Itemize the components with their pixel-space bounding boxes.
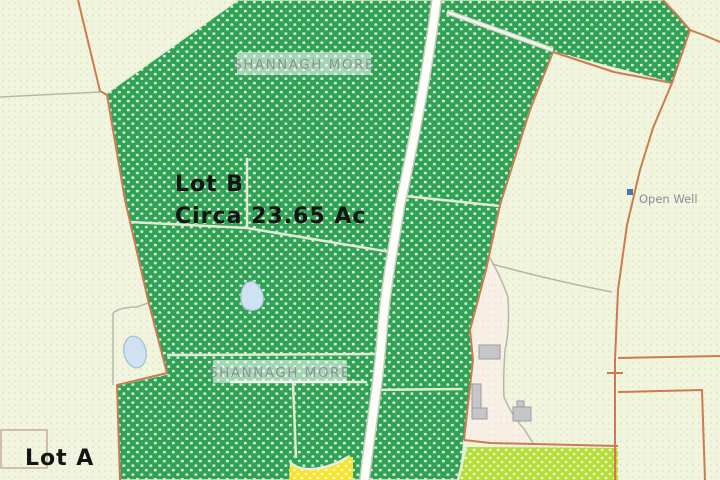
- townland-label-text: SHANNAGH MORE: [209, 365, 351, 381]
- lot-b-area-label: Circa 23.65 Ac: [175, 204, 366, 229]
- townland-label-south: SHANNAGH MORE: [209, 360, 351, 383]
- map-canvas[interactable]: Open Well SHANNAGH MORE SHANNAGH MORE Lo…: [0, 0, 720, 480]
- townland-label-north: SHANNAGH MORE: [233, 52, 375, 75]
- map-image: Open Well SHANNAGH MORE SHANNAGH MORE Lo…: [0, 0, 720, 480]
- building: [472, 408, 487, 419]
- chartreuse-field: [458, 447, 618, 480]
- open-well-label: Open Well: [639, 192, 698, 206]
- townland-label-text: SHANNAGH MORE: [233, 57, 375, 73]
- lot-b-name-label: Lot B: [175, 172, 244, 197]
- building: [517, 401, 524, 407]
- building: [513, 407, 531, 421]
- building: [479, 345, 500, 359]
- lot-a-name-label: Lot A: [25, 446, 94, 471]
- open-well-icon: [627, 189, 633, 195]
